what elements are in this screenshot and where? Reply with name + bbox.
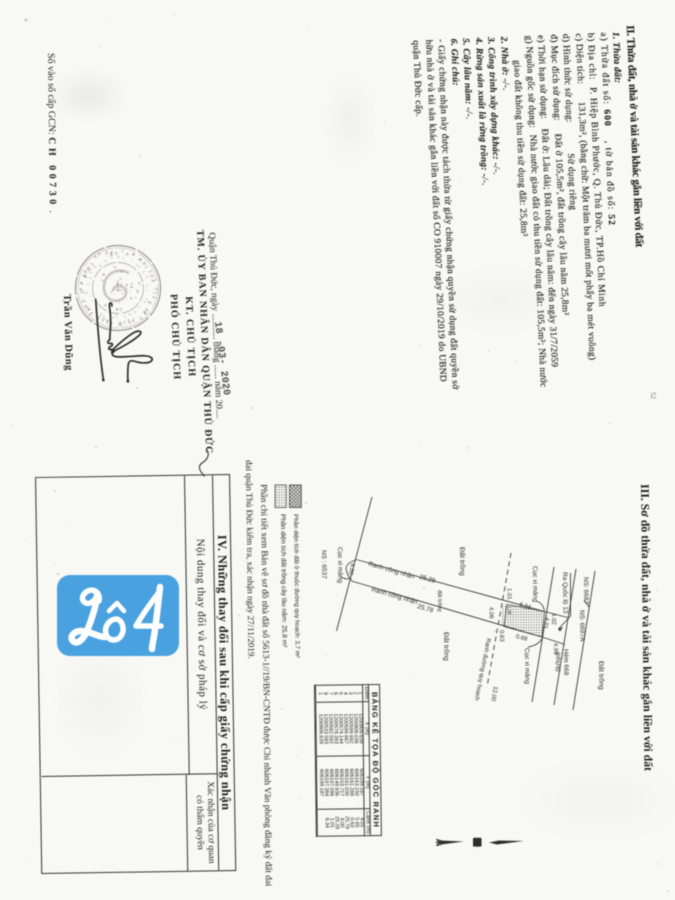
svg-text:4.02: 4.02 [550, 613, 556, 625]
svg-text:Cọc xi măng: Cọc xi măng [523, 648, 530, 685]
svg-text:Ranh công nhận: Ranh công nhận [370, 586, 418, 606]
svg-text:Đất trống: Đất trống [458, 547, 467, 576]
svg-text:Ranh công nhận: Ranh công nhận [367, 561, 415, 581]
svg-text:4.06: 4.06 [488, 607, 494, 619]
svg-text:(nhựa): (nhựa) [554, 652, 561, 672]
svg-text:Ranh đường quy hoạch: Ranh đường quy hoạch [473, 638, 491, 701]
svg-text:Cọc xi măng: Cọc xi măng [531, 566, 538, 603]
svg-text:NS : 6537: NS : 6537 [320, 550, 327, 579]
svg-text:25.28: 25.28 [418, 574, 436, 585]
svg-text:NS: 6697A: NS: 6697A [578, 610, 585, 642]
svg-text:NS: 6687: NS: 6687 [582, 577, 589, 605]
svg-text:Đất trống: Đất trống [597, 661, 606, 690]
svg-text:Cọc xi măng: Cọc xi măng [336, 547, 343, 584]
svg-text:Hẻm 668: Hẻm 668 [562, 649, 569, 676]
svg-text:Ra Quốc lộ 13: Ra Quốc lộ 13 [561, 572, 571, 614]
svg-text:1.38: 1.38 [507, 606, 512, 615]
svg-text:0.63: 0.63 [498, 630, 504, 642]
svg-text:52: 52 [649, 392, 657, 400]
svg-text:Đất trống: Đất trống [442, 632, 451, 661]
svg-text:0.68: 0.68 [515, 634, 528, 643]
svg-text:đất trống: đất trống [436, 590, 442, 612]
svg-text:12.00: 12.00 [489, 686, 498, 702]
svg-text:1.01: 1.01 [506, 588, 512, 600]
